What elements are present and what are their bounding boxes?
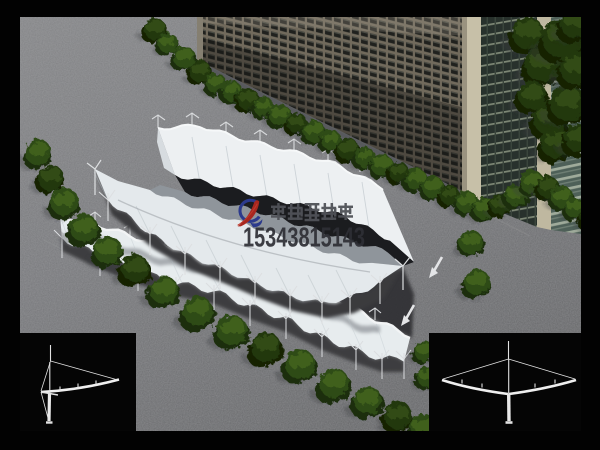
svg-text:15343815143: 15343815143 — [243, 222, 365, 253]
